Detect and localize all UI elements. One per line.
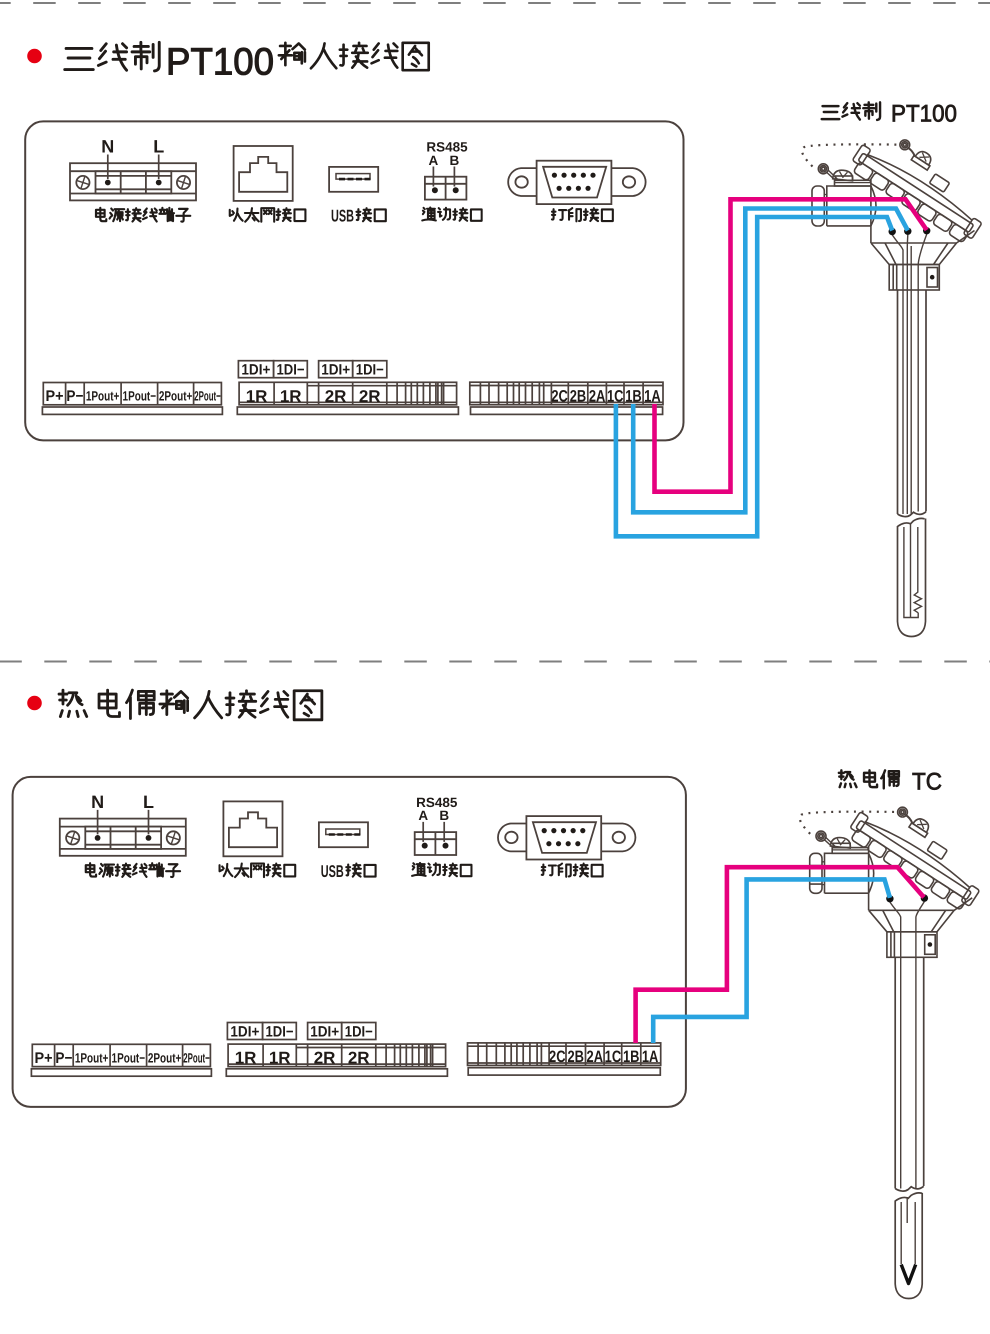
svg-text:PT100: PT100 xyxy=(891,101,957,128)
svg-text:PT100: PT100 xyxy=(166,42,274,84)
svg-text:TC: TC xyxy=(912,769,942,796)
